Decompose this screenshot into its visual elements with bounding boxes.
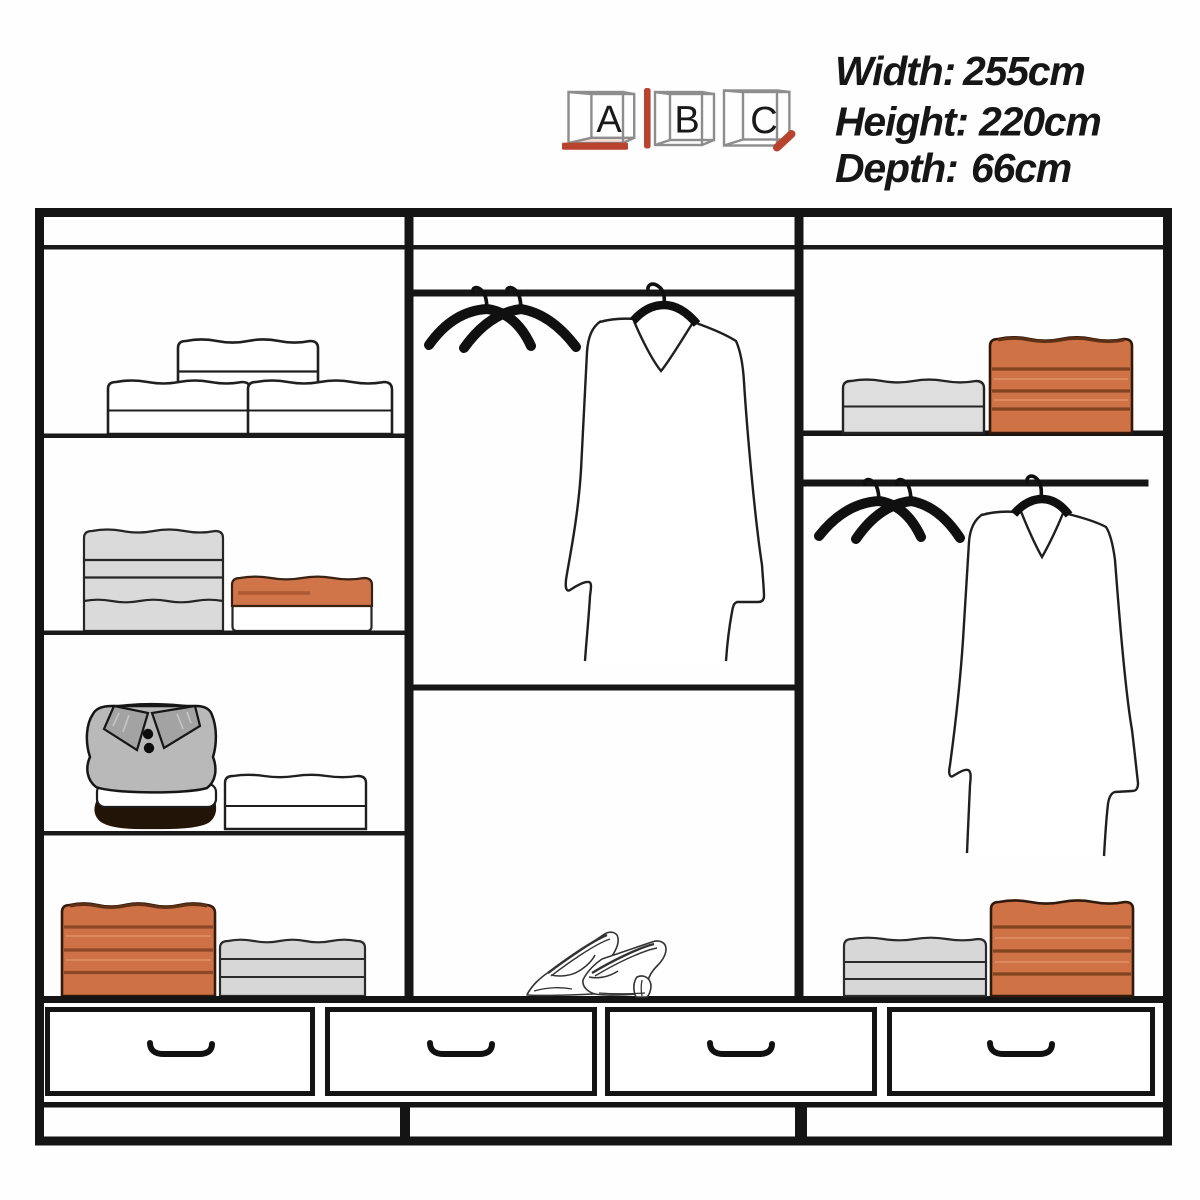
svg-text:C: C — [750, 100, 777, 142]
svg-text:A: A — [596, 99, 622, 141]
svg-text:Depth:66cm: Depth:66cm — [835, 145, 1071, 191]
svg-text:B: B — [674, 100, 699, 142]
